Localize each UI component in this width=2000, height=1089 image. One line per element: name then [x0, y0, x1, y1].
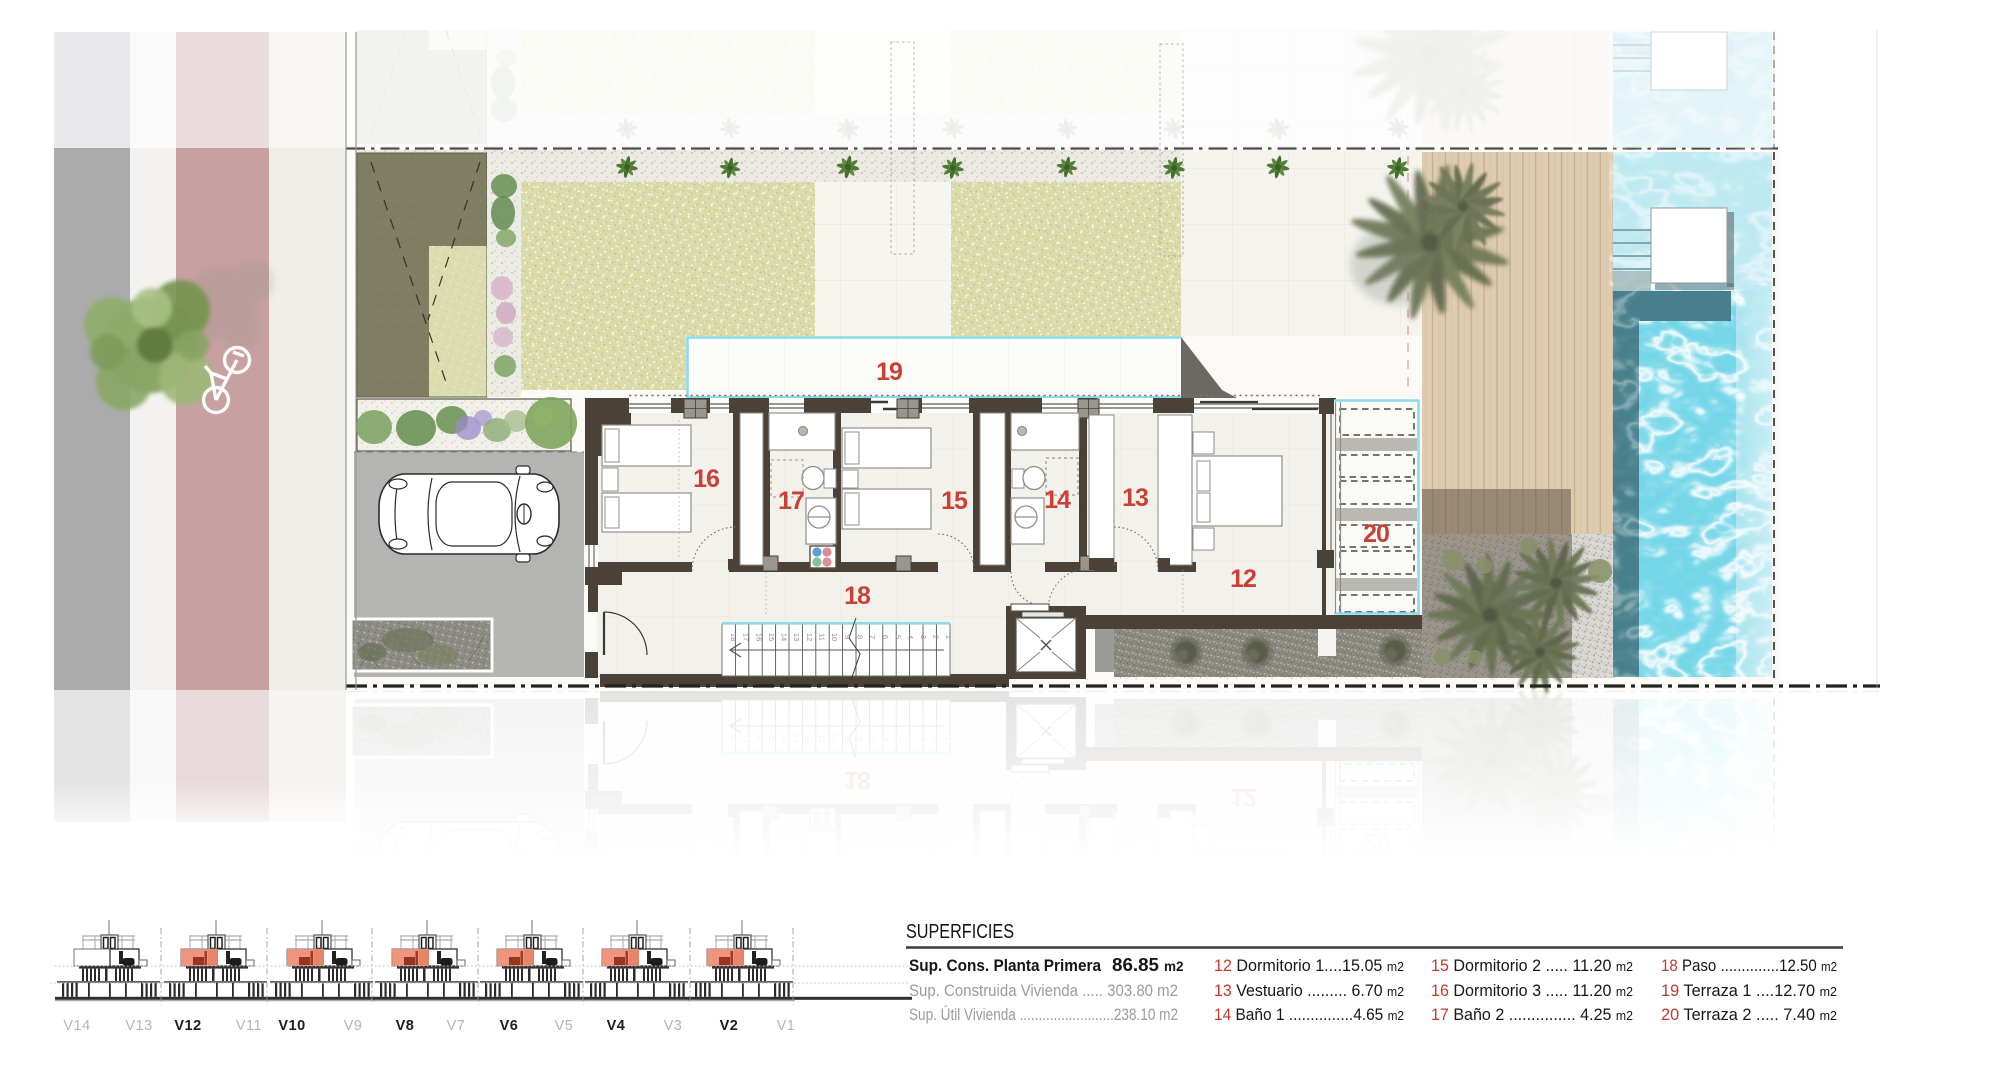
svg-text:18: 18	[729, 633, 738, 641]
svg-text:1: 1	[944, 635, 953, 639]
svg-text:2: 2	[931, 635, 940, 639]
svg-text:V2: V2	[720, 1018, 739, 1034]
svg-text:18 Paso ..............12.50 m2: 18 Paso ..............12.50 m2	[1661, 956, 1837, 975]
svg-text:14: 14	[780, 633, 789, 641]
svg-text:13: 13	[1122, 484, 1148, 512]
svg-text:V10: V10	[278, 1018, 305, 1034]
svg-text:14: 14	[1044, 486, 1071, 514]
svg-text:15: 15	[941, 487, 968, 515]
svg-text:16: 16	[693, 465, 719, 493]
svg-text:17 Baño 2 ............... 4.2: 17 Baño 2 ............... 4.25 m2	[1431, 1005, 1633, 1024]
svg-text:20: 20	[1363, 520, 1389, 548]
svg-text:11: 11	[818, 633, 827, 641]
svg-text:6: 6	[881, 635, 890, 639]
svg-text:V9: V9	[344, 1018, 363, 1034]
svg-text:Sup. Útil Vivienda ...........: Sup. Útil Vivienda .....................…	[909, 1005, 1178, 1024]
svg-text:14 Baño 1 ...............4.65: 14 Baño 1 ...............4.65 m2	[1214, 1005, 1404, 1024]
svg-text:18: 18	[844, 582, 871, 610]
svg-text:17: 17	[778, 487, 804, 515]
svg-text:5: 5	[894, 635, 903, 639]
svg-text:4: 4	[906, 635, 915, 639]
svg-text:V1: V1	[777, 1018, 796, 1034]
svg-text:V7: V7	[447, 1018, 466, 1034]
svg-text:16 Dormitorio 3 ..... 11.20 m2: 16 Dormitorio 3 ..... 11.20 m2	[1431, 981, 1633, 1000]
svg-text:9: 9	[843, 635, 852, 639]
svg-text:V8: V8	[396, 1018, 415, 1034]
svg-text:SUPERFICIES: SUPERFICIES	[906, 921, 1014, 943]
svg-text:3: 3	[919, 635, 928, 639]
svg-text:13: 13	[792, 633, 801, 641]
svg-text:12 Dormitorio 1....15.05 m2: 12 Dormitorio 1....15.05 m2	[1214, 956, 1404, 975]
svg-text:Sup. Cons. Planta Primera: Sup. Cons. Planta Primera	[909, 956, 1101, 975]
svg-text:V11: V11	[236, 1018, 262, 1034]
svg-text:12: 12	[805, 633, 814, 641]
svg-text:m2: m2	[1164, 959, 1184, 974]
svg-text:V14: V14	[63, 1018, 90, 1034]
svg-text:19 Terraza 1 ....12.70 m2: 19 Terraza 1 ....12.70 m2	[1661, 981, 1837, 1000]
svg-text:V12: V12	[174, 1018, 201, 1034]
svg-text:15: 15	[767, 633, 776, 641]
svg-text:15 Dormitorio 2 ..... 11.20 m2: 15 Dormitorio 2 ..... 11.20 m2	[1431, 956, 1633, 975]
svg-text:86.85: 86.85	[1112, 954, 1159, 975]
svg-text:V13: V13	[125, 1018, 152, 1034]
svg-text:V3: V3	[664, 1018, 683, 1034]
svg-text:16: 16	[754, 633, 763, 641]
svg-text:V4: V4	[607, 1018, 626, 1034]
svg-text:10: 10	[830, 633, 839, 641]
svg-text:Sup. Construida Vivienda .....: Sup. Construida Vivienda ..... 303.80 m2	[909, 981, 1178, 1000]
svg-text:17: 17	[742, 633, 751, 641]
svg-text:20 Terraza 2 ..... 7.40 m2: 20 Terraza 2 ..... 7.40 m2	[1661, 1005, 1837, 1024]
svg-text:19: 19	[876, 358, 902, 386]
svg-text:7: 7	[868, 635, 877, 639]
svg-text:8: 8	[856, 635, 865, 639]
svg-text:12: 12	[1230, 565, 1256, 593]
svg-text:V6: V6	[500, 1018, 519, 1034]
svg-text:V5: V5	[555, 1018, 574, 1034]
svg-text:13 Vestuario ......... 6.70 m: 13 Vestuario ......... 6.70 m2	[1214, 981, 1404, 1000]
